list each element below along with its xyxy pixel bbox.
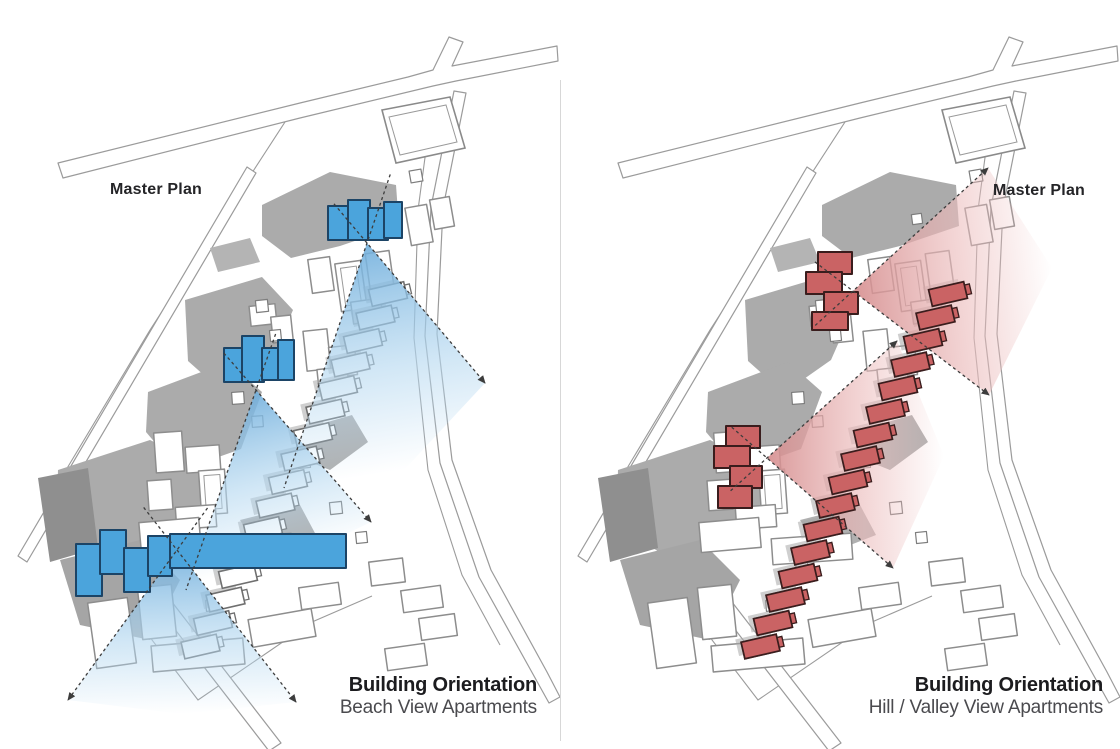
context-building [648,598,697,669]
apartment-block [124,548,150,592]
context-building [699,517,761,552]
context-building [154,431,185,473]
road-outline [618,37,1118,178]
apartment-block [170,534,346,568]
context-building [430,196,455,229]
context-building [308,257,335,294]
beach-view-panel [0,0,560,749]
context-building [929,558,966,586]
apartment-block [348,200,370,240]
road-outline [58,37,558,178]
apartment-block [718,486,752,508]
context-building [147,479,173,511]
context-building-small [915,531,927,543]
caption-subtitle-left: Beach View Apartments [340,697,537,719]
caption-left: Building Orientation Beach View Apartmen… [340,674,537,719]
apartment-block [818,252,852,274]
context-building [979,614,1018,641]
context-building [248,609,316,648]
context-building-small [255,299,268,312]
context-building [808,609,876,648]
diagram-stage: Master Plan Master Plan Building Orienta… [0,0,1120,749]
context-building [859,582,902,609]
context-building [299,582,342,609]
apartment-block [806,272,842,294]
apartment-block [714,446,750,468]
context-building [961,585,1004,612]
context-building [697,584,736,639]
context-building-small [232,392,245,405]
context-building [369,558,406,586]
context-building-small [355,531,367,543]
caption-title-right: Building Orientation [869,674,1103,697]
apartment-block [812,312,848,330]
context-building-small [792,392,805,405]
context-building [419,614,458,641]
apartment-block [278,340,294,380]
caption-subtitle-right: Hill / Valley View Apartments [869,697,1103,719]
master-plan-label-left: Master Plan [110,181,202,199]
context-building [401,585,444,612]
apartment-block [148,536,172,576]
apartment-block [100,530,126,574]
hill-valley-view-panel [560,0,1120,749]
apartment-block [384,202,402,238]
context-building-mass [210,238,260,272]
context-building [405,204,433,245]
highlighted-apartment-building [328,200,402,240]
context-building-mass [770,238,820,272]
apartment-block [76,544,102,596]
caption-title-left: Building Orientation [340,674,537,697]
context-building [945,643,988,670]
caption-right: Building Orientation Hill / Valley View … [869,674,1103,719]
context-building-small [829,329,841,341]
context-building [185,445,221,473]
apartment-block [328,206,350,240]
context-building-small [409,169,423,183]
hill-valley-view-site-plan [560,0,1120,749]
beach-view-site-plan [0,0,560,749]
master-plan-label-right: Master Plan [993,182,1085,200]
context-building [385,643,428,670]
apartment-block [824,292,858,314]
context-building-small [911,213,922,224]
context-building-mass [598,468,658,562]
